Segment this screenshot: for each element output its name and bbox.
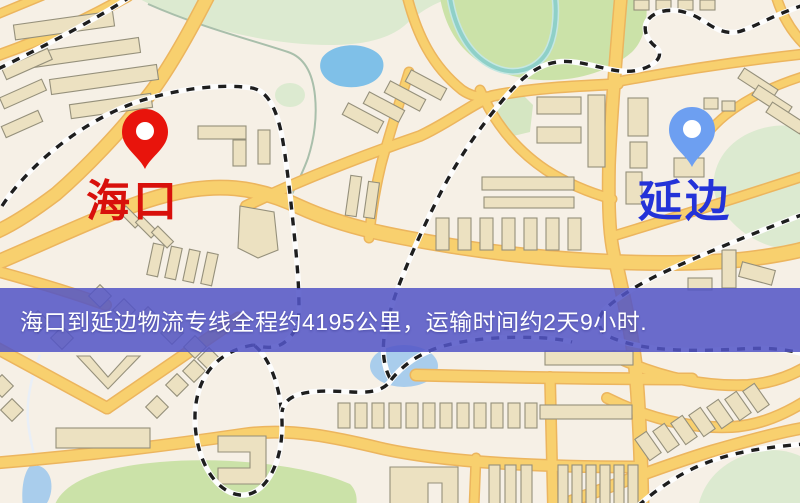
map-viewport: 海口到延边物流专线全程约4195公里，运输时间约2天9小时. 海口 延边 [0,0,800,503]
destination-city-label: 延边 [638,180,732,224]
route-banner-text: 海口到延边物流专线全程约4195公里，运输时间约2天9小时. [20,303,647,337]
origin-city-label: 海口 [86,180,180,224]
map-canvas [0,0,800,503]
route-banner: 海口到延边物流专线全程约4195公里，运输时间约2天9小时. [0,288,800,352]
